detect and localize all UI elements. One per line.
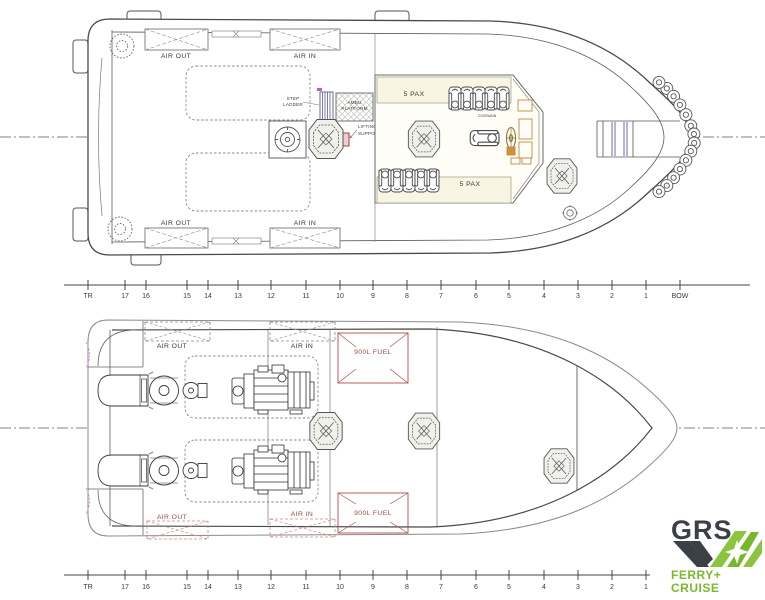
ruler-label: 3 — [576, 293, 580, 300]
ruler-label: 15 — [183, 584, 191, 591]
drawing-canvas: AIR OUT AIR IN AIR OUT AIR IN — [0, 0, 765, 600]
passenger-seats-port — [449, 87, 509, 110]
stern-fender-pad — [73, 40, 88, 73]
ruler-label: 6 — [474, 584, 478, 591]
logo-tagline-1: FERRY+ — [671, 568, 721, 582]
ruler-label: 16 — [142, 293, 150, 300]
rail-gate — [212, 31, 261, 37]
ruler-label: 1 — [644, 293, 648, 300]
vent-label: AIR IN — [294, 53, 316, 60]
ruler-label: 14 — [204, 584, 212, 591]
deck-hatch — [408, 413, 439, 449]
ruler-label: 5 — [507, 584, 511, 591]
ruler-label: 11 — [302, 293, 309, 300]
ruler-label: 10 — [336, 293, 344, 300]
logo-brand-text: GRS — [671, 515, 733, 545]
vent-label: AIR OUT — [161, 53, 191, 60]
ruler-label: 1 — [644, 584, 648, 591]
ruler-label: 13 — [234, 293, 242, 300]
fuel-tank-label: 900L FUEL — [354, 349, 392, 356]
steering-wheel — [507, 128, 516, 149]
ruler-label: 12 — [267, 293, 275, 300]
ruler-label: 12 — [267, 584, 275, 591]
ruler-label: 9 — [371, 293, 375, 300]
ruler-label: 13 — [234, 584, 242, 591]
vent-label: AIR IN — [291, 511, 313, 518]
vent-label: AIR OUT — [157, 343, 187, 350]
grs-ferry-cruise-logo: GRS FERRY+ CRUISE — [650, 490, 765, 600]
coxswain-label: COXSWAIN — [478, 114, 497, 118]
ladder-marker — [317, 88, 322, 91]
step-ladder-label: LADDER — [283, 102, 303, 107]
logo-tagline-2: CRUISE — [671, 581, 719, 595]
fuel-tank-label: 900L FUEL — [354, 510, 392, 517]
ambu-platform: AMBU PLATFORM — [336, 93, 373, 121]
deck-hatch — [310, 412, 342, 449]
ruler-label: 15 — [183, 293, 191, 300]
ruler-label: 17 — [121, 293, 129, 300]
frame-ruler-bottom: TR1716151413121110987654321BOW — [64, 570, 750, 591]
fuel-filler-fitting — [269, 121, 306, 158]
ruler-label: TR — [83, 293, 92, 300]
vessel-general-arrangement-drawing: AIR OUT AIR IN AIR OUT AIR IN — [0, 0, 765, 600]
rail-gate — [212, 238, 261, 244]
ruler-label: 3 — [576, 584, 580, 591]
pax-label-port: 5 PAX — [404, 91, 425, 98]
ruler-label: 4 — [542, 584, 546, 591]
deck-hatch — [544, 449, 574, 483]
vent-label: AIR OUT — [157, 514, 187, 521]
ruler-label: 4 — [542, 293, 546, 300]
ruler-label: 17 — [121, 584, 129, 591]
ruler-label: 6 — [474, 293, 478, 300]
ruler-label: 2 — [610, 293, 614, 300]
main-deck-plan-view: AIR OUT AIR IN AIR OUT AIR IN — [73, 11, 700, 265]
frame-ruler-top: TR1716151413121110987654321BOW — [64, 280, 750, 300]
ruler-label: 8 — [405, 584, 409, 591]
vent-label: AIR IN — [291, 343, 313, 350]
deck-hatch — [408, 121, 439, 157]
ruler-label: TR — [83, 584, 92, 591]
vent-label: AIR IN — [294, 220, 316, 227]
ruler-label: 9 — [371, 584, 375, 591]
platform-label: AMBU — [347, 100, 361, 105]
ruler-label: 8 — [405, 293, 409, 300]
step-ladder-label: STEP — [287, 96, 300, 101]
vent-label: AIR OUT — [161, 220, 191, 227]
ruler-label: 10 — [336, 584, 344, 591]
lower-deck-plan-view: AIR OUT AIR IN AIR OUT AIR IN — [86, 320, 677, 539]
ruler-label: 7 — [439, 584, 443, 591]
deck-hatch — [309, 120, 343, 159]
ruler-label: BOW — [672, 293, 689, 300]
ruler-label: 11 — [302, 584, 309, 591]
pax-label-starboard: 5 PAX — [460, 181, 481, 188]
ruler-label: 5 — [507, 293, 511, 300]
ruler-label: 14 — [204, 293, 212, 300]
platform-label: PLATFORM — [341, 106, 367, 111]
foredeck-hatch — [547, 159, 577, 193]
ruler-label: 7 — [439, 293, 443, 300]
passenger-seats-starboard — [379, 169, 439, 192]
ruler-label: 2 — [610, 584, 614, 591]
ruler-label: 16 — [142, 584, 150, 591]
coxswain-seat — [470, 131, 499, 146]
stern-fender-pad — [73, 208, 88, 241]
